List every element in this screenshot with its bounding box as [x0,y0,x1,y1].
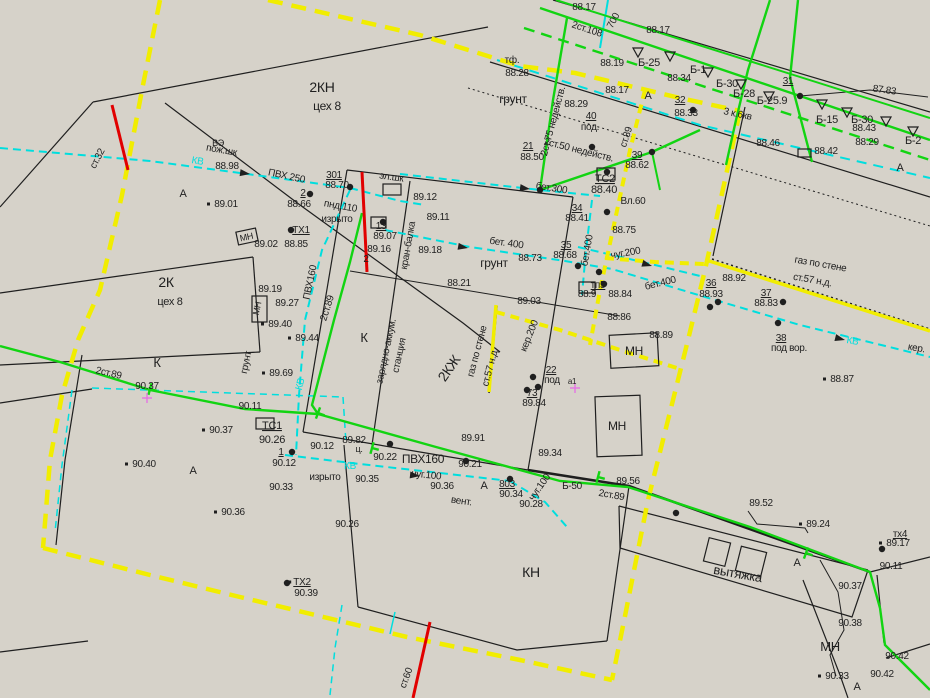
map-label: 88.89 [649,330,673,341]
spot-elevation-dot [818,675,821,678]
manhole-node [604,209,610,215]
map-label: 89.03 [517,296,541,307]
map-label: 88.68 [553,250,577,261]
map-label: 88.41 [565,213,589,224]
map-label: 88.73 [518,253,542,264]
map-label: МН [608,419,626,433]
map-label: 89.82 [342,435,366,446]
map-label: 90.22 [373,452,397,463]
map-label: А [179,188,187,200]
map-label: Б-1 [690,64,706,76]
map-label: 89.56 [616,476,640,487]
manhole-node [596,269,602,275]
map-label: А [896,162,904,174]
map-label: 90.42 [870,669,894,680]
map-label: К [153,355,161,370]
map-label: 90.37 [838,581,862,592]
map-label: 88.29 [564,99,588,110]
map-label: 90.38 [838,618,862,629]
manhole-node [797,93,803,99]
map-label: Б-15 [816,114,838,126]
map-label: 88.83 [754,298,778,309]
map-label: 31 [783,76,794,87]
map-label: 88.50 [520,152,544,163]
map-label: 88.92 [722,273,746,284]
map-label: ТС1 [262,420,282,432]
map-label: Б-25 [638,57,660,69]
map-label: Б-28 [733,88,755,100]
map-label: 89.18 [418,245,442,256]
map-label: ц. [355,444,362,454]
map-label: 88.86 [607,312,631,323]
map-label: 90.11 [239,401,263,412]
map-label: 90.37 [209,425,233,436]
map-label: 90.36 [221,507,245,518]
map-label: 90.12 [272,458,296,469]
map-label: 89.19 [258,284,282,295]
map-label: цех 8 [313,99,341,113]
map-label: 90.26 [259,434,285,446]
spot-elevation-dot [262,372,265,375]
map-label: Вл.60 [621,196,647,207]
map-label: изрыто [321,214,353,225]
map-label: 2К [158,274,174,290]
map-label: 90.33 [825,671,849,682]
map-label: под [544,375,560,386]
map-label: 90.37 [135,381,159,392]
map-label: ТХ1 [292,225,310,236]
map-label: 89.02 [254,239,278,250]
map-label: 88.28 [505,68,529,79]
map-label: 88.84 [608,289,632,300]
map-label: 89.16 [367,244,391,255]
map-label: грунт [480,256,508,270]
utility-map-svg: ст.322КНцех 82Кцех 8А89.01ВЭпож.шк88.98К… [0,0,930,698]
manhole-node [289,449,295,455]
map-label: грунт [499,92,527,106]
manhole-node [307,191,313,197]
map-label: 90.36 [430,481,454,492]
map-label: А [853,681,861,693]
map-label: 88.21 [447,278,471,289]
map-label: 89.34 [538,448,562,459]
map-label: 88.9 [578,289,597,300]
map-label: 90.26 [335,519,359,530]
map-label: 40 [586,111,597,122]
map-label: 89.17 [886,538,910,549]
utility-site-plan: ст.322КНцех 82Кцех 8А89.01ВЭпож.шк88.98К… [0,0,930,698]
map-label: А [189,465,197,477]
map-label: МН [625,344,643,358]
spot-elevation-dot [288,337,291,340]
map-label: 90.11 [880,561,904,572]
map-label: 88.93 [699,289,723,300]
manhole-node [673,510,679,516]
map-label: 89.12 [413,192,437,203]
map-label: 90.12 [310,441,334,452]
spot-elevation-dot [202,429,205,432]
map-label: К [360,330,368,345]
spot-elevation-dot [799,523,802,526]
map-label: 90.33 [269,482,293,493]
spot-elevation-dot [879,542,882,545]
map-label: 88.85 [284,239,308,250]
map-label: 88.17 [646,25,670,36]
map-label: А [644,90,652,102]
map-label: 89.84 [522,398,546,409]
map-label: 88.17 [605,85,629,96]
manhole-node [879,546,885,552]
map-label: 88.34 [667,73,691,84]
manhole-node [649,149,655,155]
map-label: 88.19 [600,58,624,69]
map-label: 88.40 [591,184,617,196]
map-label: 90.28 [519,499,543,510]
map-label: 89.01 [214,199,238,210]
manhole-node [530,374,536,380]
map-label: 88.46 [756,138,780,149]
map-label: 88.42 [814,146,838,157]
manhole-node [780,299,786,305]
map-label: 90.40 [132,459,156,470]
spot-elevation-dot [214,511,217,514]
map-label: ПВХ160 [402,452,445,466]
map-label: 88.98 [215,161,239,172]
spot-elevation-dot [125,463,128,466]
map-label: 2 [363,254,369,265]
map-label: 21 [523,141,534,152]
map-label: 88.66 [287,199,311,210]
map-label: 89.27 [275,298,299,309]
map-label: цех 8 [157,296,182,308]
map-label: 89.24 [806,519,830,530]
spot-elevation-dot [823,378,826,381]
map-label: ТХ2 [293,577,311,588]
map-label: 89.07 [373,231,397,242]
map-label: 36 [706,278,717,289]
map-label: 32 [675,95,686,106]
manhole-node [387,441,393,447]
map-label: тф. [505,54,520,66]
map-label: 1 [278,447,284,458]
map-label: 89.44 [295,333,319,344]
map-label: 90.35 [355,474,379,485]
map-label: МН [820,639,840,654]
map-label: 90.39 [294,588,318,599]
map-label: а1 [568,377,577,386]
map-label: 89.52 [749,498,773,509]
map-label: 2КН [309,79,334,95]
spot-elevation-dot [207,203,210,206]
map-label: 89.11 [427,212,451,223]
manhole-node [775,320,781,326]
map-label: А [793,557,801,569]
map-label: А [480,480,488,492]
map-label: 88.62 [625,160,649,171]
map-label: под. [581,122,599,133]
map-label: 88.87 [830,374,854,385]
map-label: 89.69 [269,368,293,379]
spot-elevation-dot [261,323,264,326]
map-label: КВ [344,461,357,472]
map-label: Б-25.9 [757,95,788,107]
map-label: под вор. [771,343,807,354]
map-label: 88.70 [325,180,349,191]
map-label: 88.43 [852,123,876,134]
map-label: 88.17 [572,2,596,13]
manhole-node [707,304,713,310]
map-label: 89.40 [268,319,292,330]
map-label: КН [522,564,540,580]
map-label: 2 [300,188,306,199]
map-label: 90.21 [458,459,482,470]
map-label: изрыто [309,472,341,483]
map-label: Б-2 [905,135,921,147]
map-label: 90.42 [885,651,909,662]
spot-elevation-dot [288,581,291,584]
map-label: 88.75 [612,225,636,236]
map-label: Б-50 [562,481,583,492]
map-label: 89.91 [461,433,485,444]
map-label: 88.33 [674,108,698,119]
map-label: 88.29 [855,137,879,148]
